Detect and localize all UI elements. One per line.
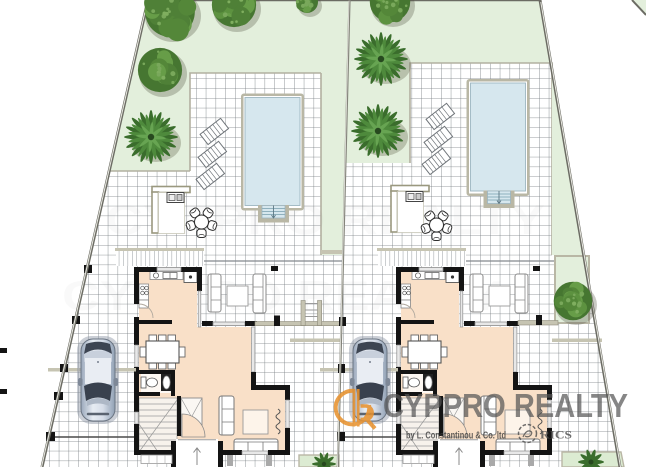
svg-text:by L. Constantinou & Co. ltd: by L. Constantinou & Co. ltd — [406, 431, 506, 442]
svg-text:CYPPRO REALTY: CYPPRO REALTY — [383, 387, 628, 424]
svg-text:RICS: RICS — [540, 428, 572, 442]
